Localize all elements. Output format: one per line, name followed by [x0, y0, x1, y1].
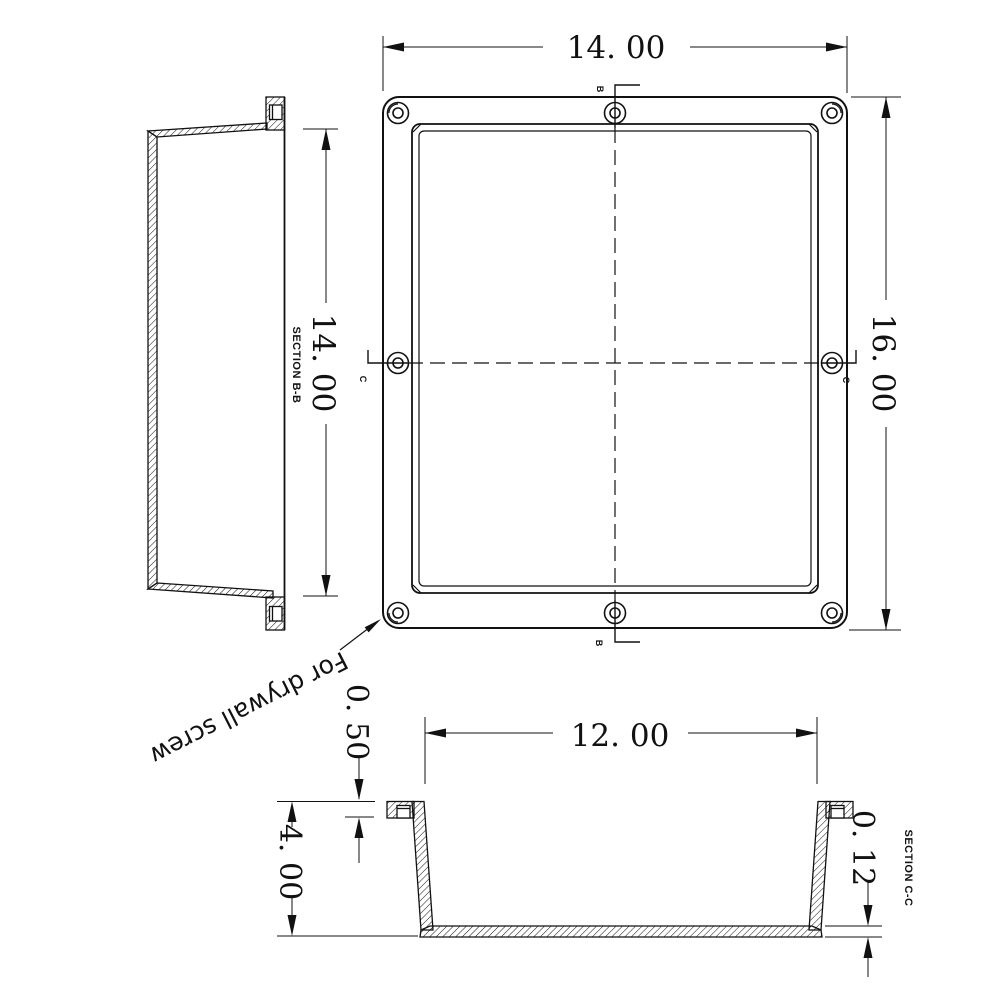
bottom-view-section-cc — [387, 802, 853, 938]
section-bb-label: SECTION B-B — [290, 327, 302, 404]
screw-hole-inner — [393, 608, 403, 618]
screw-hole — [822, 603, 843, 624]
side-top-wall — [148, 123, 267, 137]
section-marker-c-left: C — [358, 376, 368, 383]
side-flange-screw-channel — [270, 105, 283, 120]
screw-hole — [388, 103, 409, 124]
dim-bottom-thickness: 0. 12 SECTION C-C — [825, 810, 914, 977]
arrowhead — [355, 779, 364, 800]
annotation-text: For drywall screw — [145, 646, 352, 771]
arrowhead — [322, 129, 331, 150]
dim-text-depth: 4. 00 — [272, 824, 307, 900]
section-cc-label: SECTION C-C — [902, 830, 914, 907]
dim-text-front-width: 14. 00 — [567, 30, 666, 66]
arrowhead — [288, 915, 297, 936]
tub-bottom-wall — [420, 926, 822, 937]
cut-line-right — [821, 350, 856, 363]
arrowhead — [864, 905, 873, 926]
screw-hole — [388, 603, 409, 624]
side-bottom-wall — [148, 583, 273, 598]
flange-screw-channel — [831, 806, 844, 819]
dim-text-flange: 0. 50 — [339, 684, 374, 760]
arrowhead — [864, 937, 873, 958]
arrowhead — [882, 97, 891, 118]
section-marker-c-right: C — [841, 377, 851, 384]
arrowhead — [288, 802, 297, 823]
arrowhead — [796, 729, 817, 738]
screw-hole-inner — [827, 108, 837, 118]
arrowhead — [383, 43, 404, 52]
side-flange-screw-channel — [270, 607, 283, 622]
cut-line-bottom — [615, 600, 640, 642]
screw-hole — [822, 103, 843, 124]
arrowhead — [882, 609, 891, 630]
dim-front-width: 14. 00 — [383, 30, 847, 93]
tub-wall-right — [809, 802, 830, 931]
technical-drawing: B B C C 14. 00 — [0, 0, 1000, 1000]
dim-text-side-height: 14. 00 — [305, 314, 341, 413]
arrowhead — [355, 818, 364, 839]
screw-hole-inner — [393, 108, 403, 118]
dim-depth: 4. 00 — [272, 802, 418, 937]
dim-bottom-opening: 12. 00 — [425, 717, 817, 784]
section-marker-b-top: B — [595, 86, 605, 93]
dim-side-height: 14. 00 SECTION B-B — [290, 129, 341, 596]
drawing-canvas: B B C C 14. 00 — [0, 0, 1000, 1000]
leader-arrowhead — [365, 619, 381, 632]
dim-text-opening: 12. 00 — [571, 718, 670, 754]
section-marker-b-bottom: B — [594, 640, 604, 647]
flange-screw-channel — [397, 806, 410, 819]
side-back-wall — [148, 131, 157, 589]
tub-wall-left — [412, 802, 433, 931]
cut-line-top — [615, 85, 640, 128]
dim-text-bottom-thickness: 0. 12 — [845, 810, 880, 886]
side-view-section-bb — [148, 97, 285, 630]
section-cut-cc — [368, 350, 856, 363]
arrowhead — [826, 43, 847, 52]
dim-text-front-height: 16. 00 — [865, 314, 901, 413]
screw-hole-inner — [827, 608, 837, 618]
dim-front-height: 16. 00 — [849, 97, 901, 630]
arrowhead — [322, 575, 331, 596]
front-view: B B C C — [358, 85, 856, 647]
arrowhead — [425, 729, 446, 738]
